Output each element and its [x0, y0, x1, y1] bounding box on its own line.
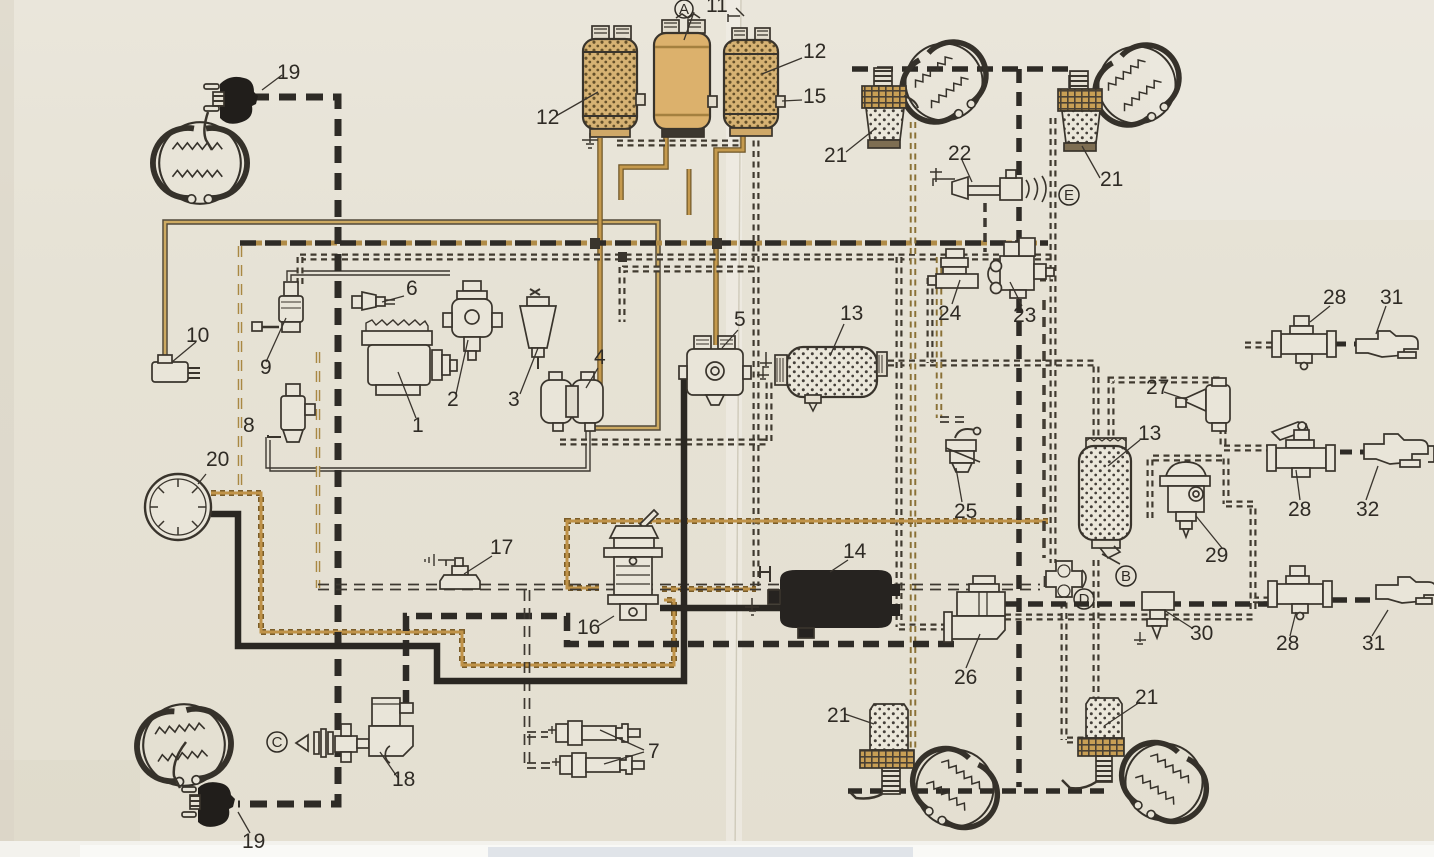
svg-text:26: 26	[954, 666, 977, 689]
svg-text:15: 15	[803, 85, 826, 108]
svg-text:19: 19	[242, 830, 265, 853]
svg-text:9: 9	[260, 356, 272, 379]
svg-text:23: 23	[1013, 304, 1036, 327]
svg-text:8: 8	[243, 414, 255, 437]
svg-text:31: 31	[1380, 286, 1403, 309]
svg-text:28: 28	[1288, 498, 1311, 521]
svg-text:3: 3	[508, 388, 520, 411]
svg-text:31: 31	[1362, 632, 1385, 655]
svg-text:7: 7	[648, 740, 660, 763]
svg-text:4: 4	[594, 346, 606, 369]
svg-text:C: C	[272, 734, 283, 751]
svg-text:E: E	[1064, 187, 1074, 204]
svg-text:13: 13	[1138, 422, 1161, 445]
svg-text:A: A	[679, 1, 689, 18]
svg-text:16: 16	[577, 616, 600, 639]
svg-text:21: 21	[1135, 686, 1158, 709]
svg-text:28: 28	[1276, 632, 1299, 655]
svg-text:12: 12	[536, 106, 559, 129]
svg-text:21: 21	[827, 704, 850, 727]
svg-text:5: 5	[734, 308, 746, 331]
svg-text:17: 17	[490, 536, 513, 559]
svg-text:21: 21	[1100, 168, 1123, 191]
svg-text:14: 14	[843, 540, 867, 563]
svg-text:30: 30	[1190, 622, 1213, 645]
svg-text:11: 11	[706, 0, 728, 17]
svg-text:B: B	[1121, 568, 1131, 585]
svg-text:24: 24	[938, 302, 962, 325]
svg-text:D: D	[1079, 591, 1090, 608]
svg-text:22: 22	[948, 142, 971, 165]
svg-text:2: 2	[447, 388, 459, 411]
svg-text:27: 27	[1146, 376, 1169, 399]
svg-text:28: 28	[1323, 286, 1346, 309]
svg-text:13: 13	[840, 302, 863, 325]
svg-text:20: 20	[206, 448, 229, 471]
svg-text:29: 29	[1205, 544, 1228, 567]
svg-text:18: 18	[392, 768, 415, 791]
svg-text:10: 10	[186, 324, 209, 347]
svg-text:1: 1	[412, 414, 424, 437]
svg-text:32: 32	[1356, 498, 1379, 521]
svg-text:19: 19	[277, 61, 300, 84]
svg-text:21: 21	[824, 144, 847, 167]
svg-text:12: 12	[803, 40, 826, 63]
svg-text:6: 6	[406, 277, 418, 300]
svg-text:25: 25	[954, 500, 977, 523]
